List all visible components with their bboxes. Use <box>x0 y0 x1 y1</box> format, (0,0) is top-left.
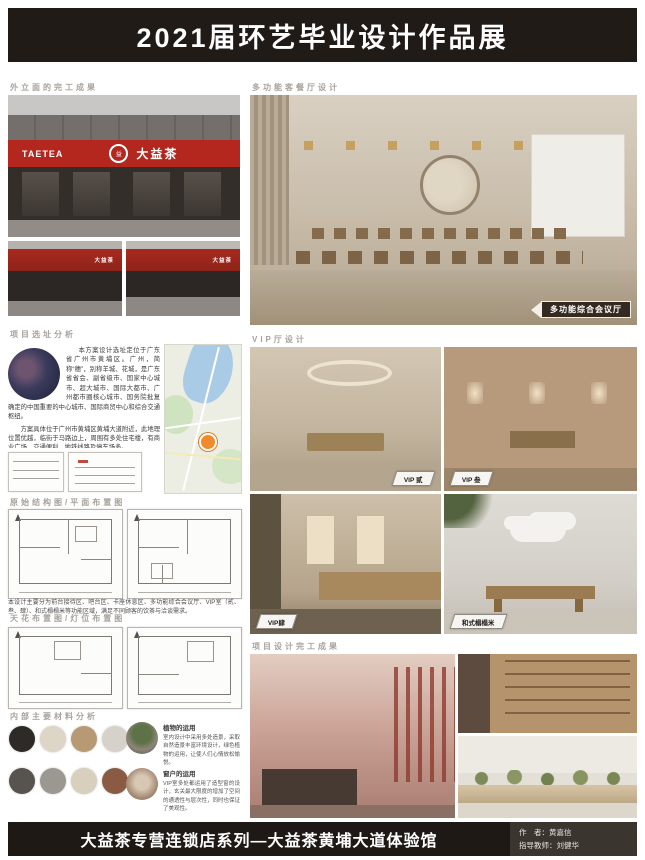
material-note-text: 窗户的运用 VIP室多处都运用了造型窗的设计，玄关最大限度的增加了空间的通透性与… <box>163 768 240 814</box>
poster-title: 2021届环艺毕业设计作品展 <box>136 16 508 55</box>
storefront-entrance <box>8 167 240 220</box>
material-note-body: 室内设计中采用多处造景，采取自然造景丰富环境设计，绿色植物的运用，让使人们心情放… <box>163 734 240 767</box>
material-note-windows: 窗户的运用 VIP室多处都运用了造型窗的设计，玄关最大限度的增加了空间的通透性与… <box>126 768 240 814</box>
site-info-table <box>68 452 142 492</box>
chair-row <box>296 251 582 264</box>
material-swatch-marble <box>102 726 128 752</box>
heading-site: 项目选址分析 <box>10 329 76 340</box>
vip-room-2-render: VIP 贰 <box>250 347 441 491</box>
vip-room-4-render: VIP肆 <box>250 494 441 634</box>
vip2-tag: VIP 贰 <box>392 471 436 486</box>
credits-block: 作 者：黄嘉信 指导教师：刘健华 <box>510 822 637 856</box>
pavement <box>126 297 240 317</box>
material-swatch-linen <box>71 768 97 794</box>
glass-door <box>22 172 59 216</box>
bench-leg <box>494 599 502 612</box>
red-awning: 大益茶 <box>126 249 240 272</box>
glass-door <box>133 172 170 216</box>
table-line <box>13 470 58 471</box>
city-night-photo <box>8 348 60 400</box>
material-note-plants: 植物的运用 室内设计中采用多处造景，采取自然造景丰富环境设计，绿色植物的运用，让… <box>126 722 240 766</box>
sky-area <box>8 95 240 115</box>
plan-wall <box>81 559 112 560</box>
plan-wall <box>138 636 231 695</box>
material-note-title: 植物的运用 <box>163 722 240 732</box>
red-awning: 大益茶 <box>8 249 122 272</box>
brand-cn-label: 大益茶 <box>136 145 178 162</box>
material-swatch-concrete <box>40 768 66 794</box>
shop-interior <box>8 271 122 301</box>
wall-light <box>529 382 545 404</box>
heading-completion: 项目设计完工成果 <box>252 641 340 652</box>
shaped-window <box>307 516 334 564</box>
author-credit: 作 者：黄嘉信 <box>519 826 637 840</box>
vip3-tag: VIP 叁 <box>450 471 494 486</box>
wood-slat-wall <box>250 95 289 265</box>
wall-light <box>591 382 607 404</box>
plan-wall <box>19 547 60 548</box>
material-swatch-dark-wood <box>9 726 35 752</box>
heading-floor-plans: 原始结构图/平面布置图 <box>10 497 125 508</box>
material-swatch-oak <box>71 726 97 752</box>
red-lattice-wall <box>394 667 456 782</box>
plan-wall <box>138 674 179 675</box>
dimension-line <box>138 702 231 703</box>
storefront-photo-main: TAETEA 益 大益茶 <box>8 95 240 237</box>
plan-room <box>75 526 97 542</box>
table-line <box>75 467 136 468</box>
location-map <box>164 344 242 494</box>
ceiling-plan <box>8 627 123 709</box>
brand-en-label: TAETEA <box>22 149 63 159</box>
plant-photo <box>126 722 158 754</box>
storefront-sign: TAETEA 益 大益茶 <box>8 140 240 167</box>
site-legend-table <box>8 452 64 492</box>
wall-light <box>467 382 483 404</box>
bench-leg <box>575 599 583 612</box>
project-title: 大益茶专营连锁店系列—大益茶黄埔大道体验馆 <box>8 822 510 856</box>
material-note-text: 植物的运用 室内设计中采用多处造景，采取自然造景丰富环境设计，绿色植物的运用，让… <box>163 722 240 766</box>
wall-column <box>458 654 490 733</box>
cloud-mirror <box>510 516 566 542</box>
plan-fixture <box>187 641 214 662</box>
dimension-line <box>19 702 112 703</box>
plan-fixture <box>54 641 81 661</box>
pendant-lamps <box>304 141 544 150</box>
pavement <box>8 220 240 237</box>
shaped-window <box>357 516 384 564</box>
completed-interior-photo-main <box>250 654 455 818</box>
highlight-mark <box>78 460 88 463</box>
building-facade <box>8 115 240 141</box>
glass-door <box>184 172 221 216</box>
conference-tag-label: 多功能综合会议厅 <box>541 301 631 318</box>
heading-ceiling-plans: 天花布置图/灯位布置图 <box>10 613 125 624</box>
material-swatch-clay <box>102 768 128 794</box>
table-line <box>13 478 58 479</box>
brand-logo-icon: 益 <box>109 144 128 163</box>
poster-page: 2021届环艺毕业设计作品展 外立面的完工成果 TAETEA 益 大益茶 大益茶… <box>0 0 645 860</box>
conference-hall-render: 多功能综合会议厅 <box>250 95 637 325</box>
vip4-tag: VIP肆 <box>256 614 298 629</box>
tatami-courtyard-render: 和式榻榻米 <box>444 494 637 634</box>
projection-screen <box>531 134 626 237</box>
completed-shelf-photo <box>458 654 637 733</box>
tea-emblem-icon <box>420 155 480 215</box>
completed-tea-bar-photo <box>458 736 637 818</box>
material-note-body: VIP室多处都运用了造型窗的设计，玄关最大限度的增加了空间的通透性与层次性，同时… <box>163 780 240 813</box>
table-line <box>75 483 136 484</box>
dimension-line <box>19 592 112 593</box>
tatami-tag: 和式榻榻米 <box>450 614 507 629</box>
plan-wall <box>138 547 179 548</box>
table-line <box>13 461 58 462</box>
wood-bench <box>486 586 594 599</box>
plan-wall <box>187 519 188 554</box>
vip-room-3-render: VIP 叁 <box>444 347 637 491</box>
plan-wall <box>19 519 112 584</box>
plan-wall <box>81 673 112 674</box>
vip4-tag-label: VIP肆 <box>268 617 285 627</box>
storefront-photo-left: 大益茶 <box>8 241 122 316</box>
floor-area <box>250 805 455 818</box>
plant-branch <box>444 494 502 528</box>
ceiling-ring-light <box>307 360 391 386</box>
vip2-tag-label: VIP 贰 <box>404 474 423 484</box>
floor-area <box>458 803 637 818</box>
wall-area <box>458 736 637 773</box>
heading-multifunction: 多功能客餐厅设计 <box>252 82 340 93</box>
lighting-plan <box>127 627 242 709</box>
tag-ribbon-icon <box>531 302 541 318</box>
pavement <box>8 301 122 316</box>
heading-vip: VIP厅设计 <box>252 334 307 345</box>
advisor-credit: 指导教师：刘健华 <box>519 839 637 853</box>
service-counter <box>262 769 356 805</box>
window-photo <box>126 768 158 800</box>
tea-table <box>510 431 576 448</box>
conference-tag: 多功能综合会议厅 <box>531 301 631 318</box>
plan-wall <box>68 519 69 554</box>
material-swatch-stone <box>9 768 35 794</box>
glass-door <box>73 172 110 216</box>
tea-table <box>307 433 383 450</box>
header-banner: 2021届环艺毕业设计作品展 <box>8 8 637 62</box>
dimension-line <box>138 592 231 593</box>
park-area <box>212 449 242 485</box>
tatami-platform <box>319 572 441 600</box>
brand-cn-label: 大益茶 <box>94 256 114 264</box>
heading-facade: 外立面的完工成果 <box>10 82 98 93</box>
heading-materials: 内部主要材料分析 <box>10 711 98 722</box>
site-detail-paragraph: 方案具体位于广州市黄埔区黄埔大道附近，此地理位置优越，临街于马路边上，周围有多处… <box>8 425 160 449</box>
footer-banner: 大益茶专营连锁店系列—大益茶黄埔大道体验馆 作 者：黄嘉信 指导教师：刘健华 <box>8 822 637 856</box>
chair-row <box>312 228 567 239</box>
map-pin-icon <box>199 433 217 451</box>
site-analysis-text: 本方案设计选址定位于广东省广州市黄埔区。广州，简称“穗”，别称羊城、花城，是广东… <box>8 346 160 448</box>
material-note-title: 窗户的运用 <box>163 768 240 778</box>
tea-bar-counter <box>458 785 637 803</box>
plan-room <box>151 563 173 579</box>
tatami-tag-label: 和式榻榻米 <box>462 617 495 627</box>
table-line <box>75 475 136 476</box>
original-structure-plan <box>8 509 123 599</box>
display-shelves <box>505 660 630 723</box>
brand-cn-label: 大益茶 <box>212 256 232 264</box>
storefront-photo-right: 大益茶 <box>126 241 240 316</box>
floor-layout-plan <box>127 509 242 599</box>
shop-interior <box>126 271 240 297</box>
material-swatch-cream <box>40 726 66 752</box>
vip3-tag-label: VIP 叁 <box>462 474 481 484</box>
